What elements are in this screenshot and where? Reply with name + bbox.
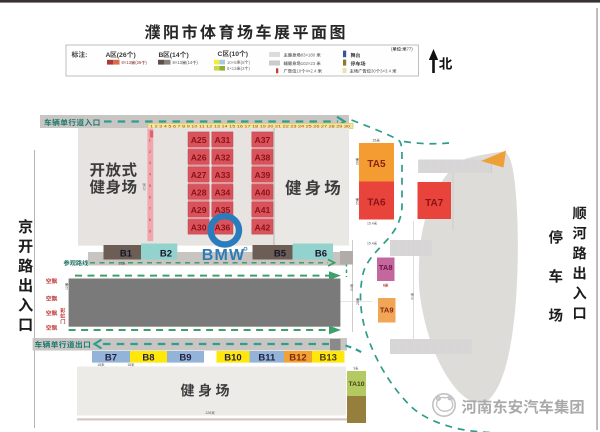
svg-text:TA8: TA8 — [379, 263, 393, 272]
svg-text:A29: A29 — [191, 205, 207, 215]
svg-text:3×3.4: 3×3.4 — [380, 69, 391, 74]
svg-text:A42: A42 — [255, 223, 271, 233]
svg-text:B7: B7 — [105, 352, 117, 363]
svg-text:(2: (2 — [241, 66, 245, 71]
svg-text:25: 25 — [356, 201, 360, 205]
svg-text:18米: 18米 — [97, 362, 105, 367]
svg-text:85: 85 — [143, 187, 147, 191]
svg-text:(8: (8 — [241, 60, 245, 65]
svg-text:B6: B6 — [315, 249, 327, 260]
svg-text:A31: A31 — [215, 135, 231, 145]
svg-text:B: B — [159, 52, 164, 59]
svg-text:A36: A36 — [215, 223, 231, 233]
svg-text:B12: B12 — [289, 352, 306, 363]
svg-text:7: 7 — [149, 207, 151, 211]
svg-text:TA10: TA10 — [348, 381, 364, 388]
svg-text:8: 8 — [149, 218, 151, 222]
svg-text:): ) — [246, 51, 248, 58]
svg-text:B10: B10 — [224, 352, 241, 363]
svg-text:30: 30 — [371, 69, 376, 74]
svg-text:A41: A41 — [255, 205, 271, 215]
svg-text:C: C — [218, 51, 223, 58]
svg-text:84: 84 — [350, 287, 354, 291]
svg-text:15.4米: 15.4米 — [367, 221, 378, 226]
svg-text:5: 5 — [149, 184, 151, 188]
svg-text:TA6: TA6 — [367, 198, 386, 209]
svg-text:15米: 15米 — [372, 137, 380, 142]
svg-text:B11: B11 — [258, 352, 276, 363]
svg-text:102×23: 102×23 — [301, 61, 316, 66]
svg-text:A38: A38 — [255, 153, 271, 163]
svg-text:10×5: 10×5 — [227, 60, 237, 65]
svg-text::: : — [401, 47, 402, 52]
svg-text:TA5: TA5 — [367, 159, 386, 170]
svg-text:B1: B1 — [120, 249, 133, 260]
svg-text:(26: (26 — [117, 52, 127, 59]
svg-text:10: 10 — [296, 69, 301, 74]
svg-text:): ) — [187, 52, 189, 59]
svg-text:2: 2 — [149, 150, 151, 154]
svg-text:A28: A28 — [191, 188, 207, 198]
svg-text:28: 28 — [356, 301, 360, 305]
svg-text:8×13: 8×13 — [173, 60, 183, 65]
svg-text:A33: A33 — [215, 170, 231, 180]
svg-text:B13: B13 — [319, 352, 336, 363]
svg-text:83×180: 83×180 — [301, 53, 316, 58]
svg-text:126米: 126米 — [205, 410, 215, 415]
svg-text:3: 3 — [149, 161, 151, 165]
svg-text:BMW: BMW — [202, 247, 246, 264]
svg-text:(10: (10 — [229, 51, 239, 58]
svg-text:A40: A40 — [255, 188, 271, 198]
svg-text:A27: A27 — [191, 170, 207, 180]
svg-text:A30: A30 — [191, 223, 207, 233]
svg-text:40: 40 — [411, 296, 415, 300]
svg-text:9米: 9米 — [354, 366, 360, 371]
svg-text:A25: A25 — [191, 135, 207, 145]
svg-text:A39: A39 — [255, 170, 271, 180]
svg-text:8×13: 8×13 — [122, 60, 132, 65]
svg-text:A34: A34 — [215, 188, 231, 198]
svg-text:1: 1 — [149, 138, 151, 142]
svg-text:A32: A32 — [215, 153, 231, 163]
svg-text:B9: B9 — [179, 352, 191, 363]
svg-text:(14: (14 — [186, 60, 193, 65]
svg-text:(14: (14 — [170, 52, 180, 59]
svg-text:B2: B2 — [160, 249, 172, 260]
svg-text:A37: A37 — [255, 135, 271, 145]
svg-text:): ) — [134, 52, 136, 59]
svg-text:15.4米: 15.4米 — [367, 241, 378, 246]
svg-text:4: 4 — [149, 173, 151, 177]
svg-text::: : — [85, 52, 87, 59]
svg-text:TA7: TA7 — [425, 198, 444, 209]
svg-text:9: 9 — [149, 230, 151, 234]
svg-text:(26: (26 — [135, 60, 142, 65]
svg-text:TA9: TA9 — [380, 306, 394, 315]
svg-text:77): 77) — [407, 47, 414, 52]
svg-text:A: A — [106, 52, 111, 59]
svg-text:6米: 6米 — [383, 283, 389, 288]
svg-text:B5: B5 — [274, 249, 287, 260]
svg-text:A26: A26 — [191, 153, 207, 163]
svg-text:26: 26 — [356, 161, 360, 165]
svg-text:12: 12 — [65, 286, 69, 290]
svg-text:18米: 18米 — [127, 362, 135, 367]
svg-text:8×13: 8×13 — [227, 66, 237, 71]
svg-text:6: 6 — [149, 195, 151, 199]
svg-text:B8: B8 — [142, 352, 154, 363]
svg-text:4×2.4: 4×2.4 — [306, 69, 317, 74]
